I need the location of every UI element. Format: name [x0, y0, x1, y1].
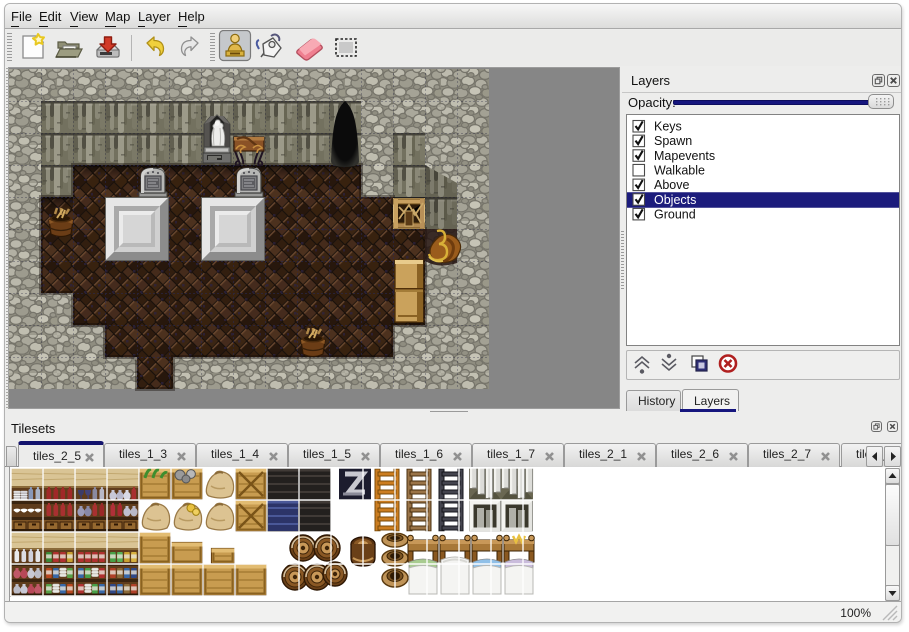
svg-text:Mapevents: Mapevents: [654, 149, 715, 163]
svg-text:Spawn: Spawn: [654, 134, 692, 148]
svg-text:Ground: Ground: [654, 207, 696, 221]
svg-text:Walkable: Walkable: [654, 163, 705, 177]
svg-text:Objects: Objects: [654, 193, 696, 207]
svg-text:Above: Above: [654, 178, 689, 192]
svg-text:Keys: Keys: [654, 120, 682, 134]
